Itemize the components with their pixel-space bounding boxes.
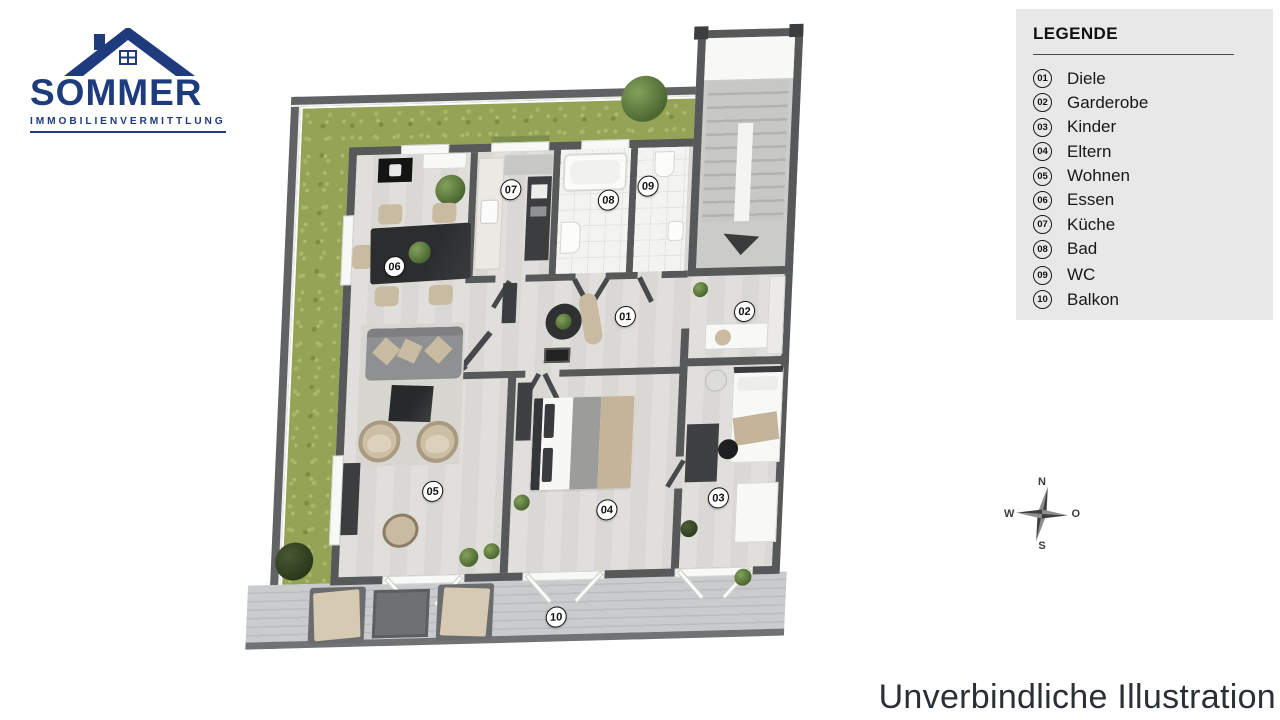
legend-label: Wohnen	[1067, 166, 1130, 186]
legend-label: Bad	[1067, 239, 1097, 259]
legend-num: 10	[1033, 290, 1052, 309]
legend-num: 02	[1033, 93, 1052, 112]
legend-label: Küche	[1067, 215, 1115, 235]
kids-wardrobe	[734, 482, 779, 543]
legend-item-balkon: 10 Balkon	[1033, 290, 1255, 309]
legend-item-eltern: 04 Eltern	[1033, 142, 1255, 161]
legend-label: Eltern	[1067, 142, 1111, 162]
wc-sink	[667, 221, 684, 241]
kitchen-appliance-column	[524, 176, 552, 261]
page: SOMMER IMMOBILIENVERMITTLUNG LEGENDE 01 …	[0, 0, 1280, 720]
dining-chair-1	[378, 204, 403, 225]
legend-item-wc: 09 WC	[1033, 266, 1255, 285]
legend-num: 04	[1033, 142, 1052, 161]
legend-label: WC	[1067, 265, 1095, 285]
legend-item-kueche: 07 Küche	[1033, 215, 1255, 234]
legend-num: 05	[1033, 167, 1052, 186]
legend-divider	[1033, 54, 1234, 55]
compass-rose: N O S W	[1006, 478, 1078, 550]
legend-num: 06	[1033, 191, 1052, 210]
hall-doormat	[544, 347, 571, 363]
legend-item-garderobe: 02 Garderobe	[1033, 93, 1255, 112]
balcony-chair-2	[436, 583, 495, 640]
bedroom-dresser	[515, 382, 533, 440]
disclaimer-text: Unverbindliche Illustration	[879, 678, 1276, 717]
dining-sideboard	[422, 152, 467, 169]
garderobe-cabinet	[766, 276, 785, 354]
legend-item-wohnen: 05 Wohnen	[1033, 167, 1255, 186]
legend-label: Garderobe	[1067, 93, 1148, 113]
bathtub	[562, 152, 628, 192]
dining-chair-4	[428, 285, 453, 306]
house-roof-icon	[64, 20, 196, 78]
legend-label: Balkon	[1067, 290, 1119, 310]
compass-west-label: W	[1004, 508, 1014, 520]
legend-num: 08	[1033, 240, 1052, 259]
legend-item-bad: 08 Bad	[1033, 240, 1255, 259]
stair-landing	[704, 36, 795, 80]
hall-console	[502, 283, 518, 323]
stair-direction-arrow	[722, 233, 759, 258]
living-sofa	[365, 326, 463, 381]
brand-name: SOMMER	[30, 74, 220, 111]
kitchen-sink	[480, 200, 499, 224]
wc-toilet	[654, 151, 675, 178]
dining-chair-2	[432, 203, 457, 224]
legend-num: 03	[1033, 118, 1052, 137]
legend-panel: LEGENDE 01 Diele 02 Garderobe 03 Kinder …	[1016, 9, 1273, 320]
legend-label: Essen	[1067, 190, 1114, 210]
window-kitchen-top	[491, 141, 550, 153]
brand-logo: SOMMER IMMOBILIENVERMITTLUNG	[30, 20, 220, 133]
bedroom-bed	[530, 396, 634, 491]
compass-south-label: S	[1038, 540, 1045, 552]
kids-desk	[685, 423, 720, 482]
kitchen-counter-top	[504, 154, 553, 175]
living-tv-board	[340, 463, 360, 535]
legend-title: LEGENDE	[1033, 24, 1255, 44]
dining-chair-3	[374, 286, 399, 307]
stair-post-right	[789, 24, 804, 37]
stairwell	[688, 28, 804, 277]
legend-item-kinder: 03 Kinder	[1033, 118, 1255, 137]
bath-sink	[560, 221, 581, 254]
wall-hall-top-4	[662, 270, 688, 278]
legend-num: 07	[1033, 215, 1052, 234]
compass-east-label: O	[1071, 508, 1080, 520]
legend-num: 01	[1033, 69, 1052, 88]
legend-item-essen: 06 Essen	[1033, 191, 1255, 210]
legend-label: Diele	[1067, 69, 1106, 89]
wall-hall-top-3	[605, 272, 637, 280]
brand-subtitle: IMMOBILIENVERMITTLUNG	[30, 116, 226, 133]
dining-wall-art	[378, 158, 413, 183]
floor-plan: 01 02 03 04 05 06 07 08 09 10	[230, 23, 818, 670]
stair-post-left	[694, 26, 709, 39]
wall-hall-top-2	[525, 273, 575, 281]
balcony-table	[372, 589, 430, 638]
legend-label: Kinder	[1067, 117, 1116, 137]
balcony-chair-1	[308, 587, 367, 644]
legend-num: 09	[1033, 266, 1052, 285]
compass-north-label: N	[1038, 476, 1046, 488]
living-coffee-table	[388, 385, 433, 422]
legend-item-diele: 01 Diele	[1033, 69, 1255, 88]
